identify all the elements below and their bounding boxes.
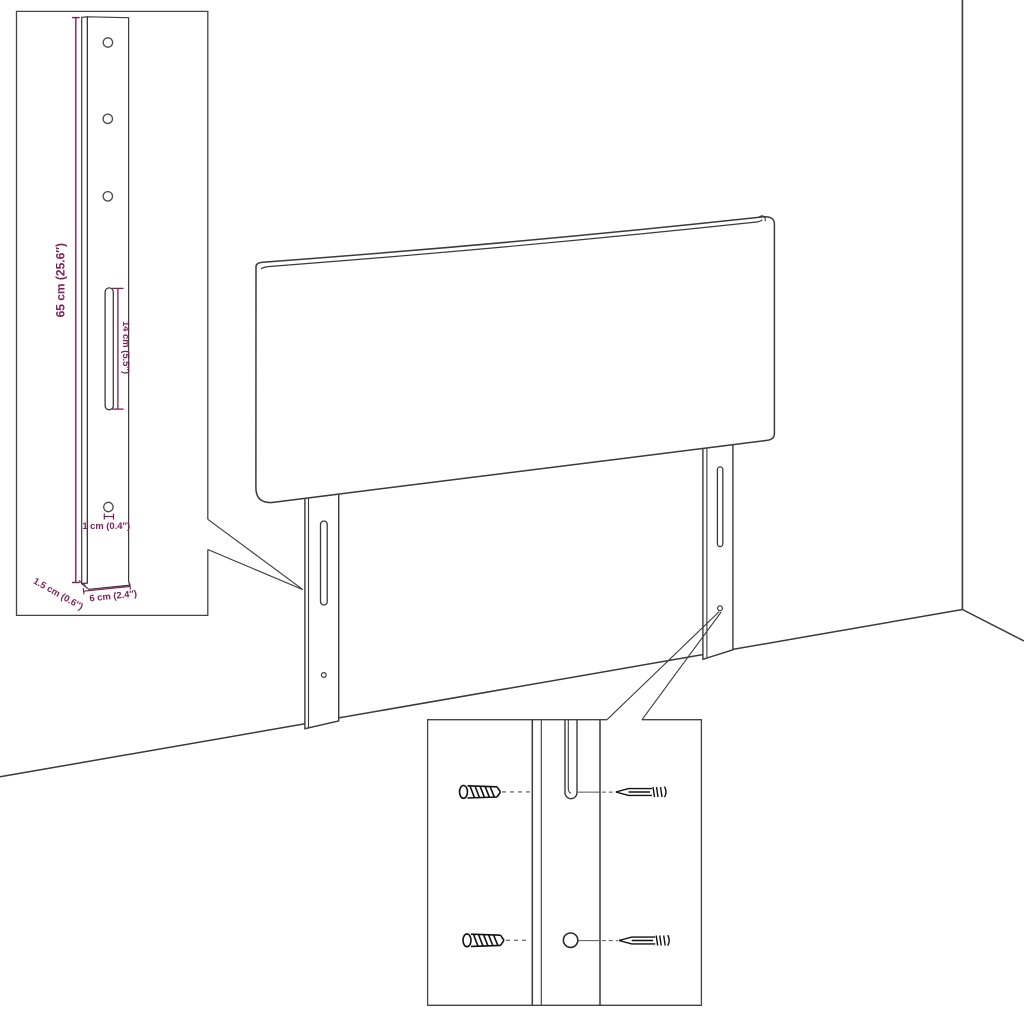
svg-text:14 cm (5.5″): 14 cm (5.5″)	[121, 321, 132, 374]
svg-text:1 cm (0.4″): 1 cm (0.4″)	[82, 520, 130, 531]
svg-text:65 cm (25.6″): 65 cm (25.6″)	[54, 243, 68, 317]
